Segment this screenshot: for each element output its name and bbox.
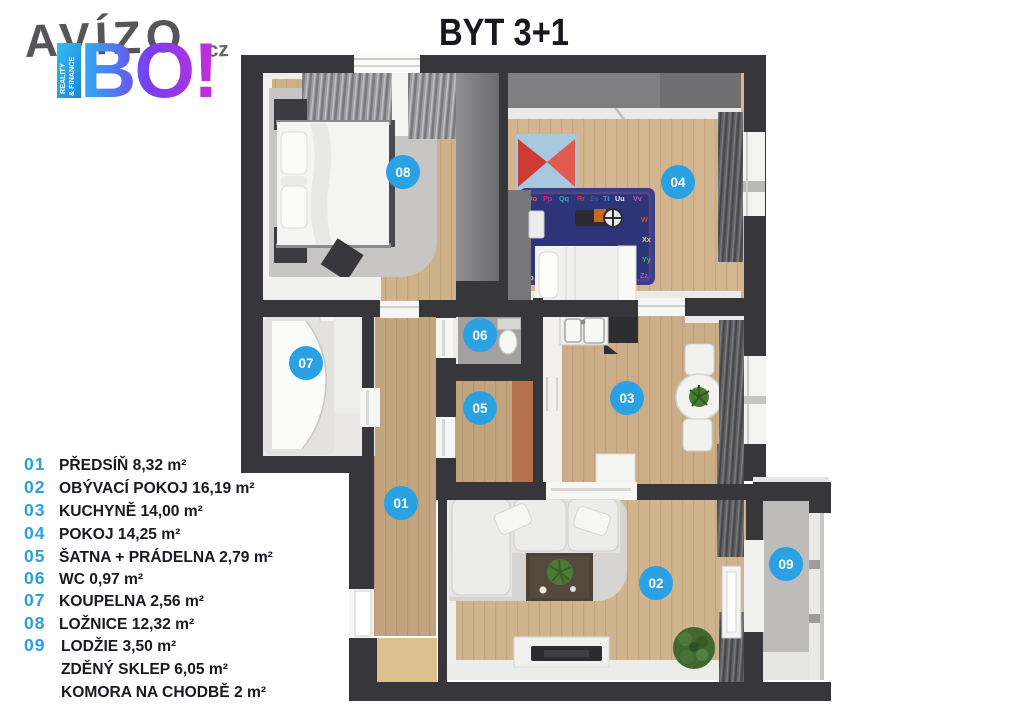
svg-text:08: 08 <box>24 613 45 633</box>
svg-text:Ss: Ss <box>590 194 599 203</box>
svg-text:POKOJ 14,25 m²: POKOJ 14,25 m² <box>59 526 180 543</box>
svg-text:ŠATNA + PRÁDELNA 2,79 m²: ŠATNA + PRÁDELNA 2,79 m² <box>59 547 273 566</box>
svg-text:03: 03 <box>24 500 45 520</box>
svg-text:09: 09 <box>778 557 793 572</box>
svg-text:BYT 3+1: BYT 3+1 <box>439 12 569 54</box>
svg-text:Zz: Zz <box>640 271 648 280</box>
svg-text:OBÝVACÍ POKOJ 16,19 m²: OBÝVACÍ POKOJ 16,19 m² <box>59 478 255 497</box>
svg-text:02: 02 <box>648 576 663 591</box>
svg-text:Xx: Xx <box>642 235 651 244</box>
svg-text:PŘEDSÍŇ 8,32 m²: PŘEDSÍŇ 8,32 m² <box>59 455 186 474</box>
svg-text:02: 02 <box>24 477 45 497</box>
svg-text:Pp: Pp <box>543 194 553 203</box>
svg-text:01: 01 <box>393 496 409 511</box>
svg-text:KUCHYNĚ 14,00 m²: KUCHYNĚ 14,00 m² <box>59 501 203 520</box>
svg-text:Qq: Qq <box>559 194 569 203</box>
svg-text:05: 05 <box>24 546 45 566</box>
svg-text:01: 01 <box>24 454 45 474</box>
svg-text:06: 06 <box>24 568 45 588</box>
svg-text:06: 06 <box>472 328 488 343</box>
svg-text:ZDĚNÝ SKLEP 6,05 m²: ZDĚNÝ SKLEP 6,05 m² <box>61 659 228 678</box>
svg-text:BO!: BO! <box>80 26 217 114</box>
svg-text:08: 08 <box>395 165 411 180</box>
svg-text:07: 07 <box>298 356 313 371</box>
svg-text:Yy: Yy <box>642 255 651 264</box>
svg-text:& FINANCE: & FINANCE <box>67 57 76 96</box>
svg-text:KOMORA NA CHODBĚ 2 m²: KOMORA NA CHODBĚ 2 m² <box>61 682 266 701</box>
svg-text:Rr: Rr <box>577 194 585 203</box>
svg-text:KOUPELNA 2,56 m²: KOUPELNA 2,56 m² <box>59 593 204 610</box>
svg-text:05: 05 <box>472 401 488 416</box>
svg-text:W: W <box>641 215 648 224</box>
svg-text:LOŽNICE 12,32 m²: LOŽNICE 12,32 m² <box>59 614 194 633</box>
svg-text:Vv: Vv <box>633 194 642 203</box>
svg-text:04: 04 <box>670 175 686 190</box>
svg-text:REALITY: REALITY <box>58 63 67 94</box>
svg-text:07: 07 <box>24 590 45 610</box>
svg-text:Tt: Tt <box>603 194 610 203</box>
svg-text:09: 09 <box>24 635 45 655</box>
svg-text:04: 04 <box>24 523 45 543</box>
svg-text:WC 0,97 m²: WC 0,97 m² <box>59 571 143 588</box>
svg-text:LODŽIE 3,50 m²: LODŽIE 3,50 m² <box>61 636 176 655</box>
svg-text:03: 03 <box>619 391 635 406</box>
svg-text:Uu: Uu <box>615 194 625 203</box>
